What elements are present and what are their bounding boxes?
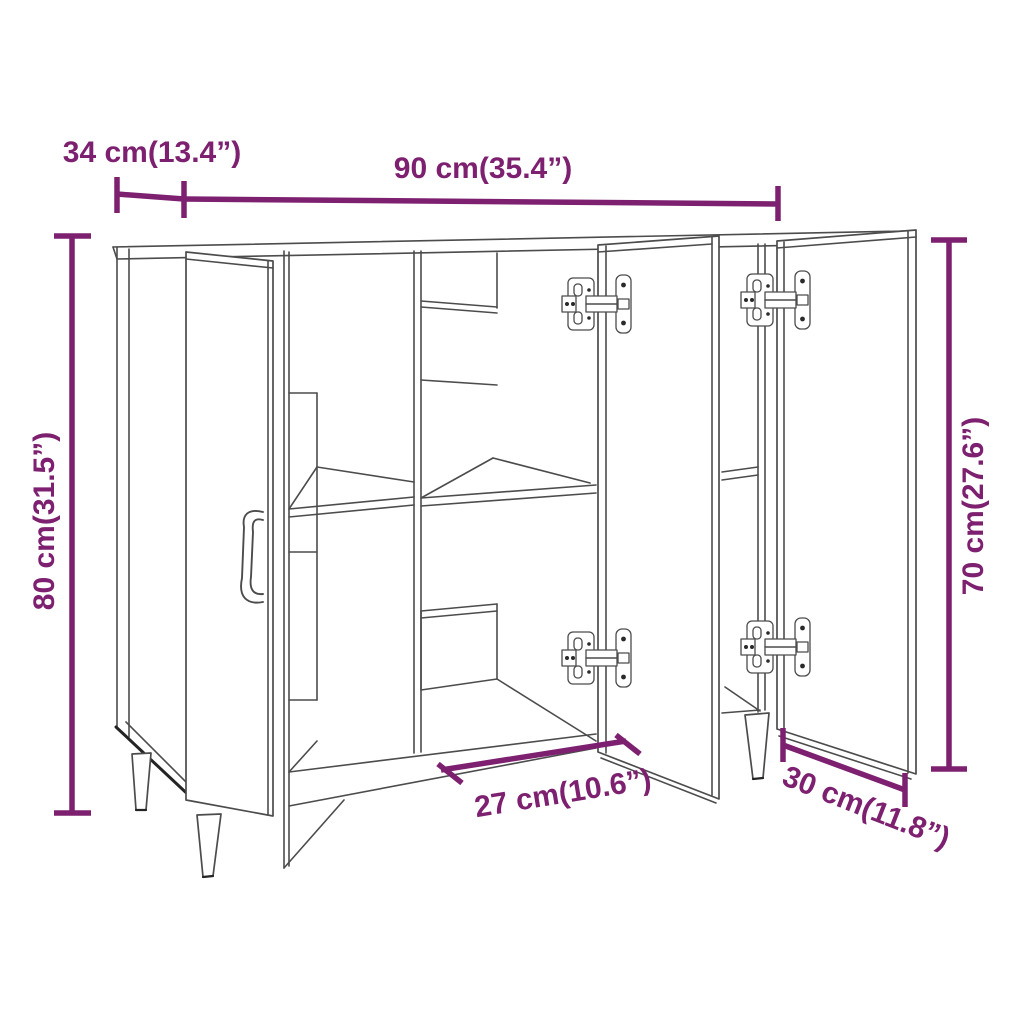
diagram-canvas: 34 cm(13.4”) 90 cm(35.4”) 80 cm(31.5”) 7… (0, 0, 1024, 1024)
dimension-label-top-width: 90 cm(35.4”) (394, 152, 572, 186)
cabinet-left-side-panel (116, 247, 196, 801)
hinge-icon (741, 271, 810, 329)
shelf-left-compartment (289, 467, 414, 517)
dimension-label-door-height: 70 cm(27.6”) (957, 417, 991, 595)
dimension-line-top-width-90cm (184, 186, 778, 221)
dimension-line-top-depth-34cm (117, 177, 184, 218)
hinge-icon (562, 629, 631, 687)
left-door-closed (186, 252, 273, 816)
hinge-icon (562, 275, 631, 333)
dimension-label-top-depth: 34 cm(13.4”) (63, 136, 241, 170)
cabinet-interior (284, 251, 596, 868)
dimension-label-overall-height: 80 cm(31.5”) (28, 432, 62, 610)
shelf-center-compartment (421, 458, 596, 506)
hinge-icon (741, 618, 810, 676)
